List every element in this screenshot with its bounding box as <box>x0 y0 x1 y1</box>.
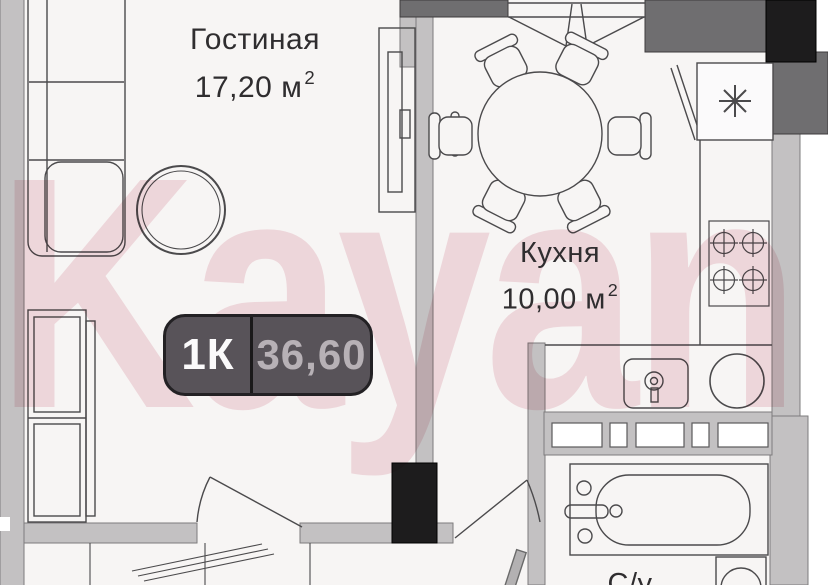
dining-chair <box>429 113 472 159</box>
dining-chair <box>608 113 651 159</box>
living-room-name: Гостиная <box>140 20 370 60</box>
kitchen-label: Кухня 10,00 м2 <box>450 234 670 320</box>
living-room-label: Гостиная 17,20 м2 <box>140 20 370 108</box>
top-wall-right <box>645 0 770 52</box>
sofa <box>28 0 125 256</box>
vent-duct <box>718 423 768 447</box>
corner-wall-block <box>773 52 828 134</box>
badge-total-area: 36,60 <box>253 317 370 393</box>
black-column-top <box>766 0 816 62</box>
vent-duct <box>636 423 684 447</box>
vent-shaft-wall <box>544 412 772 455</box>
bottom-wall-mid <box>300 523 392 543</box>
right-outer-wall-upper <box>772 134 800 416</box>
living-room-area: 17,20 м2 <box>140 60 370 108</box>
wall-notch <box>0 517 10 531</box>
dining-table <box>478 72 602 196</box>
right-outer-wall-lower <box>770 416 808 585</box>
badge-room-count: 1К <box>166 317 250 393</box>
floor-plan-drawing <box>0 0 828 585</box>
vent-duct <box>552 423 602 447</box>
fridge <box>697 63 773 140</box>
apartment-badge: 1К 36,60 <box>163 314 373 396</box>
vent-duct <box>610 423 627 447</box>
left-outer-wall <box>0 0 24 585</box>
black-column-bottom <box>392 463 437 543</box>
bottom-wall-stub <box>437 523 453 543</box>
wardrobe <box>28 310 95 522</box>
kitchen-name: Кухня <box>450 234 670 273</box>
vent-duct <box>692 423 709 447</box>
bath-left-wall <box>528 343 545 585</box>
bottom-wall-left <box>24 523 197 543</box>
top-wall-left <box>400 0 508 17</box>
living-kitchen-partition <box>416 16 433 465</box>
kitchen-area: 10,00 м2 <box>450 273 670 320</box>
bathroom-label: С/у <box>588 564 672 585</box>
floor-plan-page: Kayan Гостиная 17,20 м2 Кухня 10,00 м2 С… <box>0 0 828 585</box>
